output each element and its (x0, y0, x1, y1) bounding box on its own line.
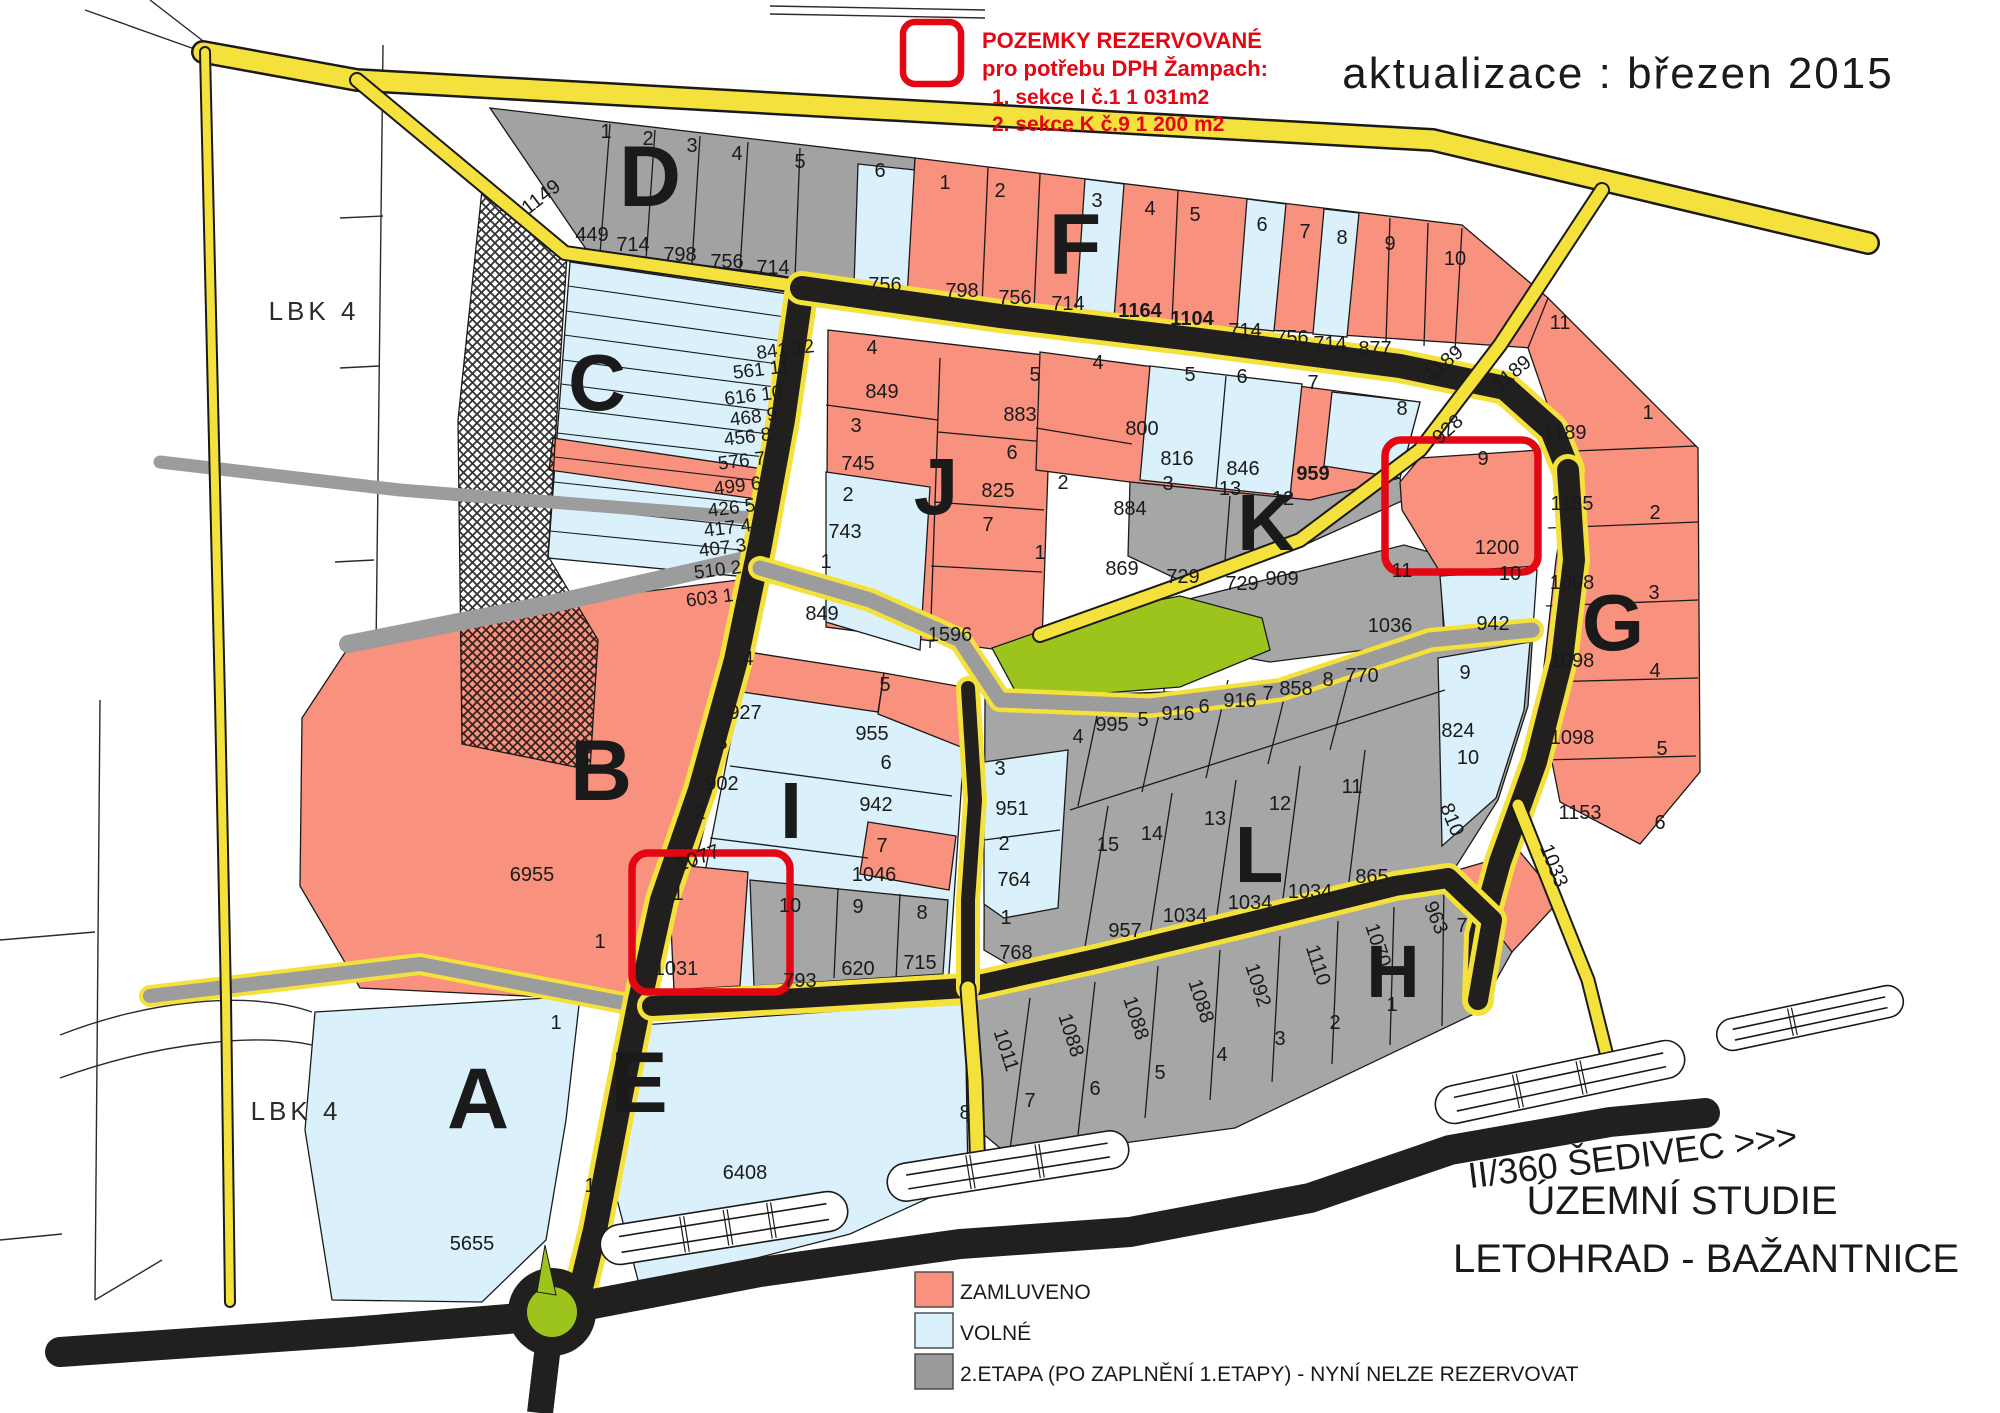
map-label: 957 (1108, 920, 1141, 942)
map-label: 729 (1166, 566, 1199, 588)
map-label: 8 (916, 902, 927, 924)
map-label: 824 (1441, 720, 1474, 742)
map-label: 11 (1550, 312, 1571, 334)
map-label: 3 (686, 135, 697, 157)
legend-label-2: 2.ETAPA (PO ZAPLNĚNÍ 1.ETAPY) - NYNÍ NEL… (960, 1363, 1579, 1386)
map-label: 8 (1322, 669, 1333, 691)
map-label: 2 (842, 484, 853, 506)
reserved-note-line2: pro potřebu DPH Žampach: (982, 56, 1268, 81)
map-label: 4 (1649, 660, 1660, 682)
map-label: 8 (959, 1102, 970, 1124)
map-label: 745 (841, 453, 874, 475)
map-label: 3 (1274, 1028, 1285, 1050)
map-label: 1034 (1288, 881, 1333, 903)
map-label: 883 (1003, 404, 1036, 426)
map-label: 1153 (1558, 802, 1601, 824)
section-letter-c: C (568, 338, 626, 427)
map-label: 800 (1125, 418, 1158, 440)
map-label: 869 (1105, 558, 1138, 580)
street-i-l (968, 688, 975, 988)
map-label: 5 (1137, 709, 1148, 731)
map-label: 9 (1459, 662, 1470, 684)
map-label: 5655 (450, 1233, 495, 1255)
map-label: 6408 (723, 1162, 768, 1184)
map-label: 5 (879, 674, 890, 696)
lbk-label-top: LBK 4 (269, 296, 360, 326)
map-label: 7 (876, 835, 887, 857)
map-label: 2 (642, 128, 653, 150)
map-label: 7 (982, 514, 993, 536)
map-label: 5 (1029, 364, 1040, 386)
map-label: 6 (1006, 442, 1017, 464)
section-letter-a: A (447, 1051, 509, 1147)
map-label: 955 (855, 723, 888, 745)
map-label: 849 (805, 603, 838, 625)
map-label: 4 (1072, 726, 1083, 748)
reserved-note-line4: 2. sekce K č.9 1 200 m2 (992, 113, 1224, 136)
map-label: 4 (1144, 198, 1155, 220)
map-label: 951 (995, 798, 1028, 820)
map-label: 1036 (1368, 615, 1413, 637)
map-label: 3 (850, 415, 861, 437)
map-label: 12 (1272, 488, 1294, 510)
map-label: 8 (1336, 227, 1347, 249)
map-label: 9 (1477, 448, 1488, 470)
map-label: 6 (1198, 696, 1209, 718)
map-label: 1135 (1550, 493, 1593, 515)
map-label: 764 (997, 869, 1030, 891)
section-letter-b: B (570, 723, 632, 819)
update-note: aktualizace : březen 2015 (1342, 49, 1893, 98)
map-label: 3 (1648, 582, 1659, 604)
study-title: ÚZEMNÍ STUDIE (1526, 1178, 1837, 1223)
map-label: 8 (1396, 398, 1407, 420)
map-label: 7 (1307, 372, 1318, 394)
map-label: 7 (1262, 683, 1273, 705)
map-label: 1 (594, 931, 605, 953)
map-label: 1 (1642, 402, 1653, 424)
map-label: 4 (1216, 1044, 1227, 1066)
map-label: 11 (1342, 776, 1363, 798)
map-label: 2 (1057, 472, 1068, 494)
map-label: 9 (1384, 233, 1395, 255)
map-label: 1 (820, 551, 831, 573)
map-label: 1164 (1118, 300, 1162, 322)
map-label: 14 (1141, 823, 1163, 845)
legend-swatch-1 (915, 1313, 953, 1348)
map-label: 449 (575, 224, 608, 246)
map-label: 1189 (1543, 422, 1586, 444)
map-label: 6 (1256, 214, 1267, 236)
map-label: 1 (1034, 542, 1045, 564)
map-label: 11 (1392, 560, 1413, 582)
map-label: 4 (731, 143, 742, 165)
map-label: 798 (945, 280, 978, 302)
map-label: 13 (1204, 808, 1226, 830)
map-label: 927 (728, 702, 761, 724)
map-label: 3 (716, 732, 727, 754)
map-label: 1104 (1170, 308, 1214, 330)
section-letter-j: J (914, 442, 959, 531)
map-label: 1 (550, 1012, 561, 1034)
map-label: 846 (1226, 458, 1259, 480)
map-label: 3 (1091, 190, 1102, 212)
map-label: 770 (1345, 665, 1378, 687)
map-label: 916 (1161, 703, 1194, 725)
map-label: 714 (1051, 293, 1084, 315)
map-label: 3 (994, 758, 1005, 780)
map-label: 10 (1444, 248, 1466, 270)
map-label: 865 (1355, 866, 1388, 888)
map-label: 6 (880, 752, 891, 774)
map-label: 768 (999, 942, 1032, 964)
map-label: 7 (1456, 915, 1467, 937)
map-label: 10 (1457, 747, 1479, 769)
map-label: 729 (1225, 573, 1258, 595)
map-label: 714 (756, 257, 789, 279)
section-letter-l: L (1235, 810, 1284, 899)
map-label: 1034 (1228, 892, 1273, 914)
map-label: 9 (852, 896, 863, 918)
map-label: 2 (998, 833, 1009, 855)
reserved-note-line1: POZEMKY REZERVOVANÉ (982, 28, 1262, 53)
map-label: 877 (1358, 338, 1391, 360)
map-label: 916 (1223, 690, 1256, 712)
map-label: 7 (1024, 1090, 1035, 1112)
map-label: 995 (1095, 714, 1128, 736)
map-label: 1 (1000, 907, 1011, 929)
map-label: 715 (903, 952, 936, 974)
map-label: 7 (1299, 221, 1310, 243)
map-label: 1098 (1550, 572, 1595, 594)
map-label: 714 (1313, 333, 1346, 355)
map-label: 793 (783, 970, 816, 992)
map-label: 756 (710, 251, 743, 273)
map-label: 2 (1329, 1012, 1340, 1034)
map-label: 3 (1162, 473, 1173, 495)
map-label: 5 (1154, 1062, 1165, 1084)
map-label: 4 (742, 648, 753, 670)
map-label: 1046 (852, 864, 897, 886)
map-label: 620 (841, 958, 874, 980)
map-label: 902 (705, 773, 738, 795)
legend-label-0: ZAMLUVENO (960, 1281, 1091, 1304)
section-letter-i: I (780, 766, 802, 855)
map-label: 1098 (1550, 650, 1595, 672)
legend-swatch-0 (915, 1272, 953, 1307)
map-label: 756 (998, 287, 1031, 309)
map-label: 15 (1097, 834, 1119, 856)
map-label: 2 (994, 180, 1005, 202)
map-label: 959 (1296, 463, 1329, 485)
map-label: 909 (1265, 568, 1298, 590)
map-label: 1 (939, 172, 950, 194)
map-label: 1 (600, 121, 611, 143)
map-label: 6 (1654, 812, 1665, 834)
map-label: 10 (1499, 563, 1521, 585)
map-label: 714 (616, 234, 649, 256)
map-label: 1098 (1550, 727, 1595, 749)
map-label: 1034 (1163, 905, 1208, 927)
map-label: 10 (779, 895, 801, 917)
map-label: 942 (1476, 613, 1509, 635)
map-label: 5 (1189, 204, 1200, 226)
map-label: 4 (1092, 352, 1103, 374)
map-label: 1596 (928, 624, 973, 646)
map-label: 884 (1113, 498, 1146, 520)
place-title: LETOHRAD - BAŽANTNICE (1453, 1236, 1959, 1281)
map-label: 1 (584, 1175, 595, 1197)
map-label: 5 (1656, 738, 1667, 760)
map-label: 12 (1269, 793, 1291, 815)
map-label: 849 (865, 381, 898, 403)
map-label: 5 (794, 151, 805, 173)
map-label: 2 (694, 802, 705, 824)
map-label: 6 (1236, 366, 1247, 388)
map-label: 4 (866, 337, 877, 359)
reserved-note-line3: 1. sekce I č.1 1 031m2 (992, 86, 1209, 109)
map-label: 1 (1386, 994, 1397, 1016)
map-label: 798 (663, 244, 696, 266)
map-label: 6955 (510, 864, 555, 886)
map-label: 816 (1160, 448, 1193, 470)
map-label: 1 (672, 883, 683, 905)
map-label: 13 (1219, 478, 1241, 500)
map-label: 6 (1089, 1078, 1100, 1100)
legend-label-1: VOLNÉ (960, 1322, 1031, 1345)
map-label: 756 (868, 274, 901, 296)
map-label: 825 (981, 480, 1014, 502)
zoning-map-page: POZEMKY REZERVOVANÉpro potřebu DPH Žampa… (0, 0, 2000, 1413)
map-label: 714 (1228, 320, 1261, 342)
map-label: 1200 (1475, 537, 1520, 559)
map-label: 5 (1184, 364, 1195, 386)
map-label: 1031 (654, 958, 699, 980)
map-label: 756 (1275, 327, 1308, 349)
map-label: 858 (1279, 678, 1312, 700)
map-label: 6 (874, 160, 885, 182)
map-label: 2 (1649, 502, 1660, 524)
map-label: 942 (859, 794, 892, 816)
legend-swatch-2 (915, 1354, 953, 1389)
section-letter-e: E (610, 1035, 667, 1131)
map-canvas: POZEMKY REZERVOVANÉpro potřebu DPH Žampa… (0, 0, 2000, 1413)
map-label: 743 (828, 521, 861, 543)
lbk-label-bottom: LBK 4 (251, 1096, 342, 1126)
